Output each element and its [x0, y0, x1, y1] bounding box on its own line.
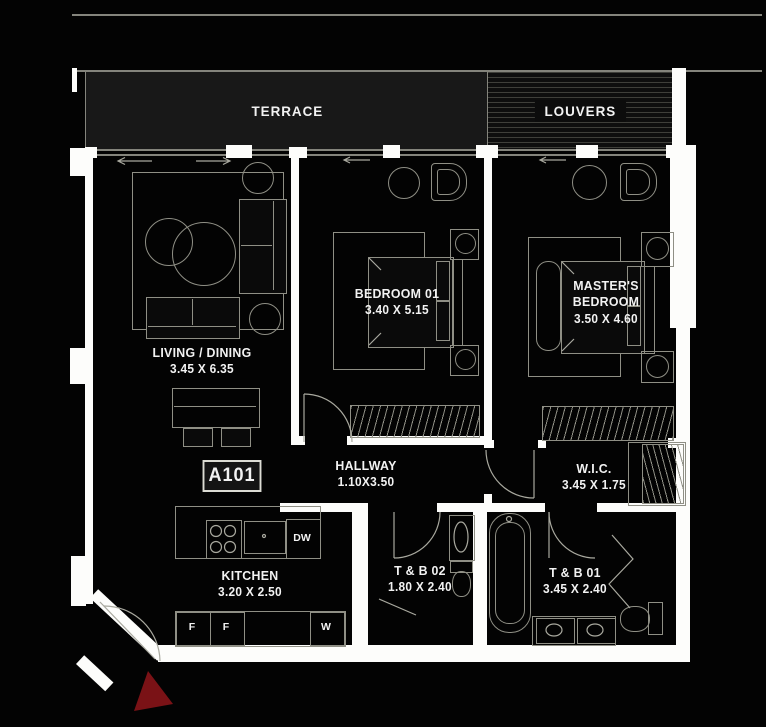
door-arc [486, 450, 534, 498]
blanket-fold [369, 258, 381, 345]
shower-screen [609, 535, 633, 608]
vanity-basin [546, 624, 562, 636]
burner [225, 526, 236, 537]
entry-arrow-icon [134, 671, 173, 711]
tub-faucet [507, 517, 512, 522]
shower-line [379, 599, 416, 615]
slide-arrow-icon [196, 158, 230, 165]
burner [211, 526, 222, 537]
door-arc [304, 394, 352, 442]
slide-arrow-icon [118, 158, 152, 165]
slide-arrow-icon [344, 157, 370, 163]
vanity-basin [587, 624, 603, 636]
door-arc [549, 512, 595, 558]
sink-drain [263, 535, 266, 538]
burner [211, 542, 222, 553]
vanity-basin [454, 522, 468, 552]
burner [225, 542, 236, 553]
door-arc [394, 512, 440, 558]
blanket-fold [562, 262, 574, 351]
floor-plan: TERRACE LOUVERS [0, 0, 766, 727]
annotations-layer [0, 0, 766, 727]
slide-arrow-icon [540, 157, 566, 163]
